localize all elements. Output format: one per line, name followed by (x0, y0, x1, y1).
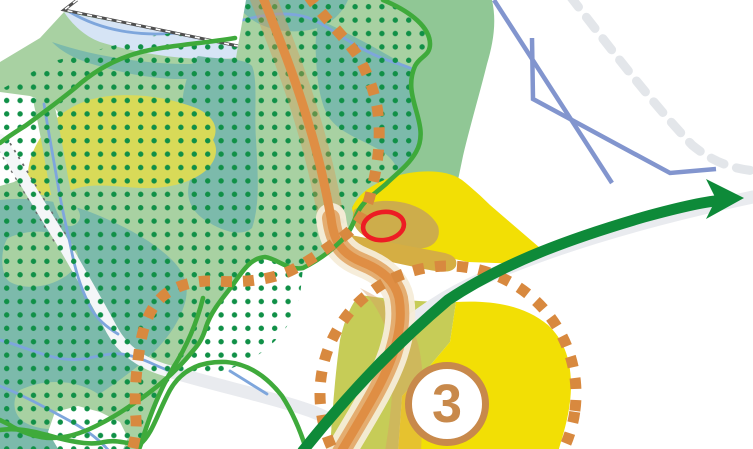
site-badge-3: 3 (405, 362, 489, 446)
plan-lines (494, 0, 753, 183)
site-badge-label: 3 (432, 377, 462, 431)
faded-gray-dashed-line (570, 0, 753, 171)
planning-map (0, 0, 753, 449)
map-canvas: 3 (0, 0, 753, 449)
